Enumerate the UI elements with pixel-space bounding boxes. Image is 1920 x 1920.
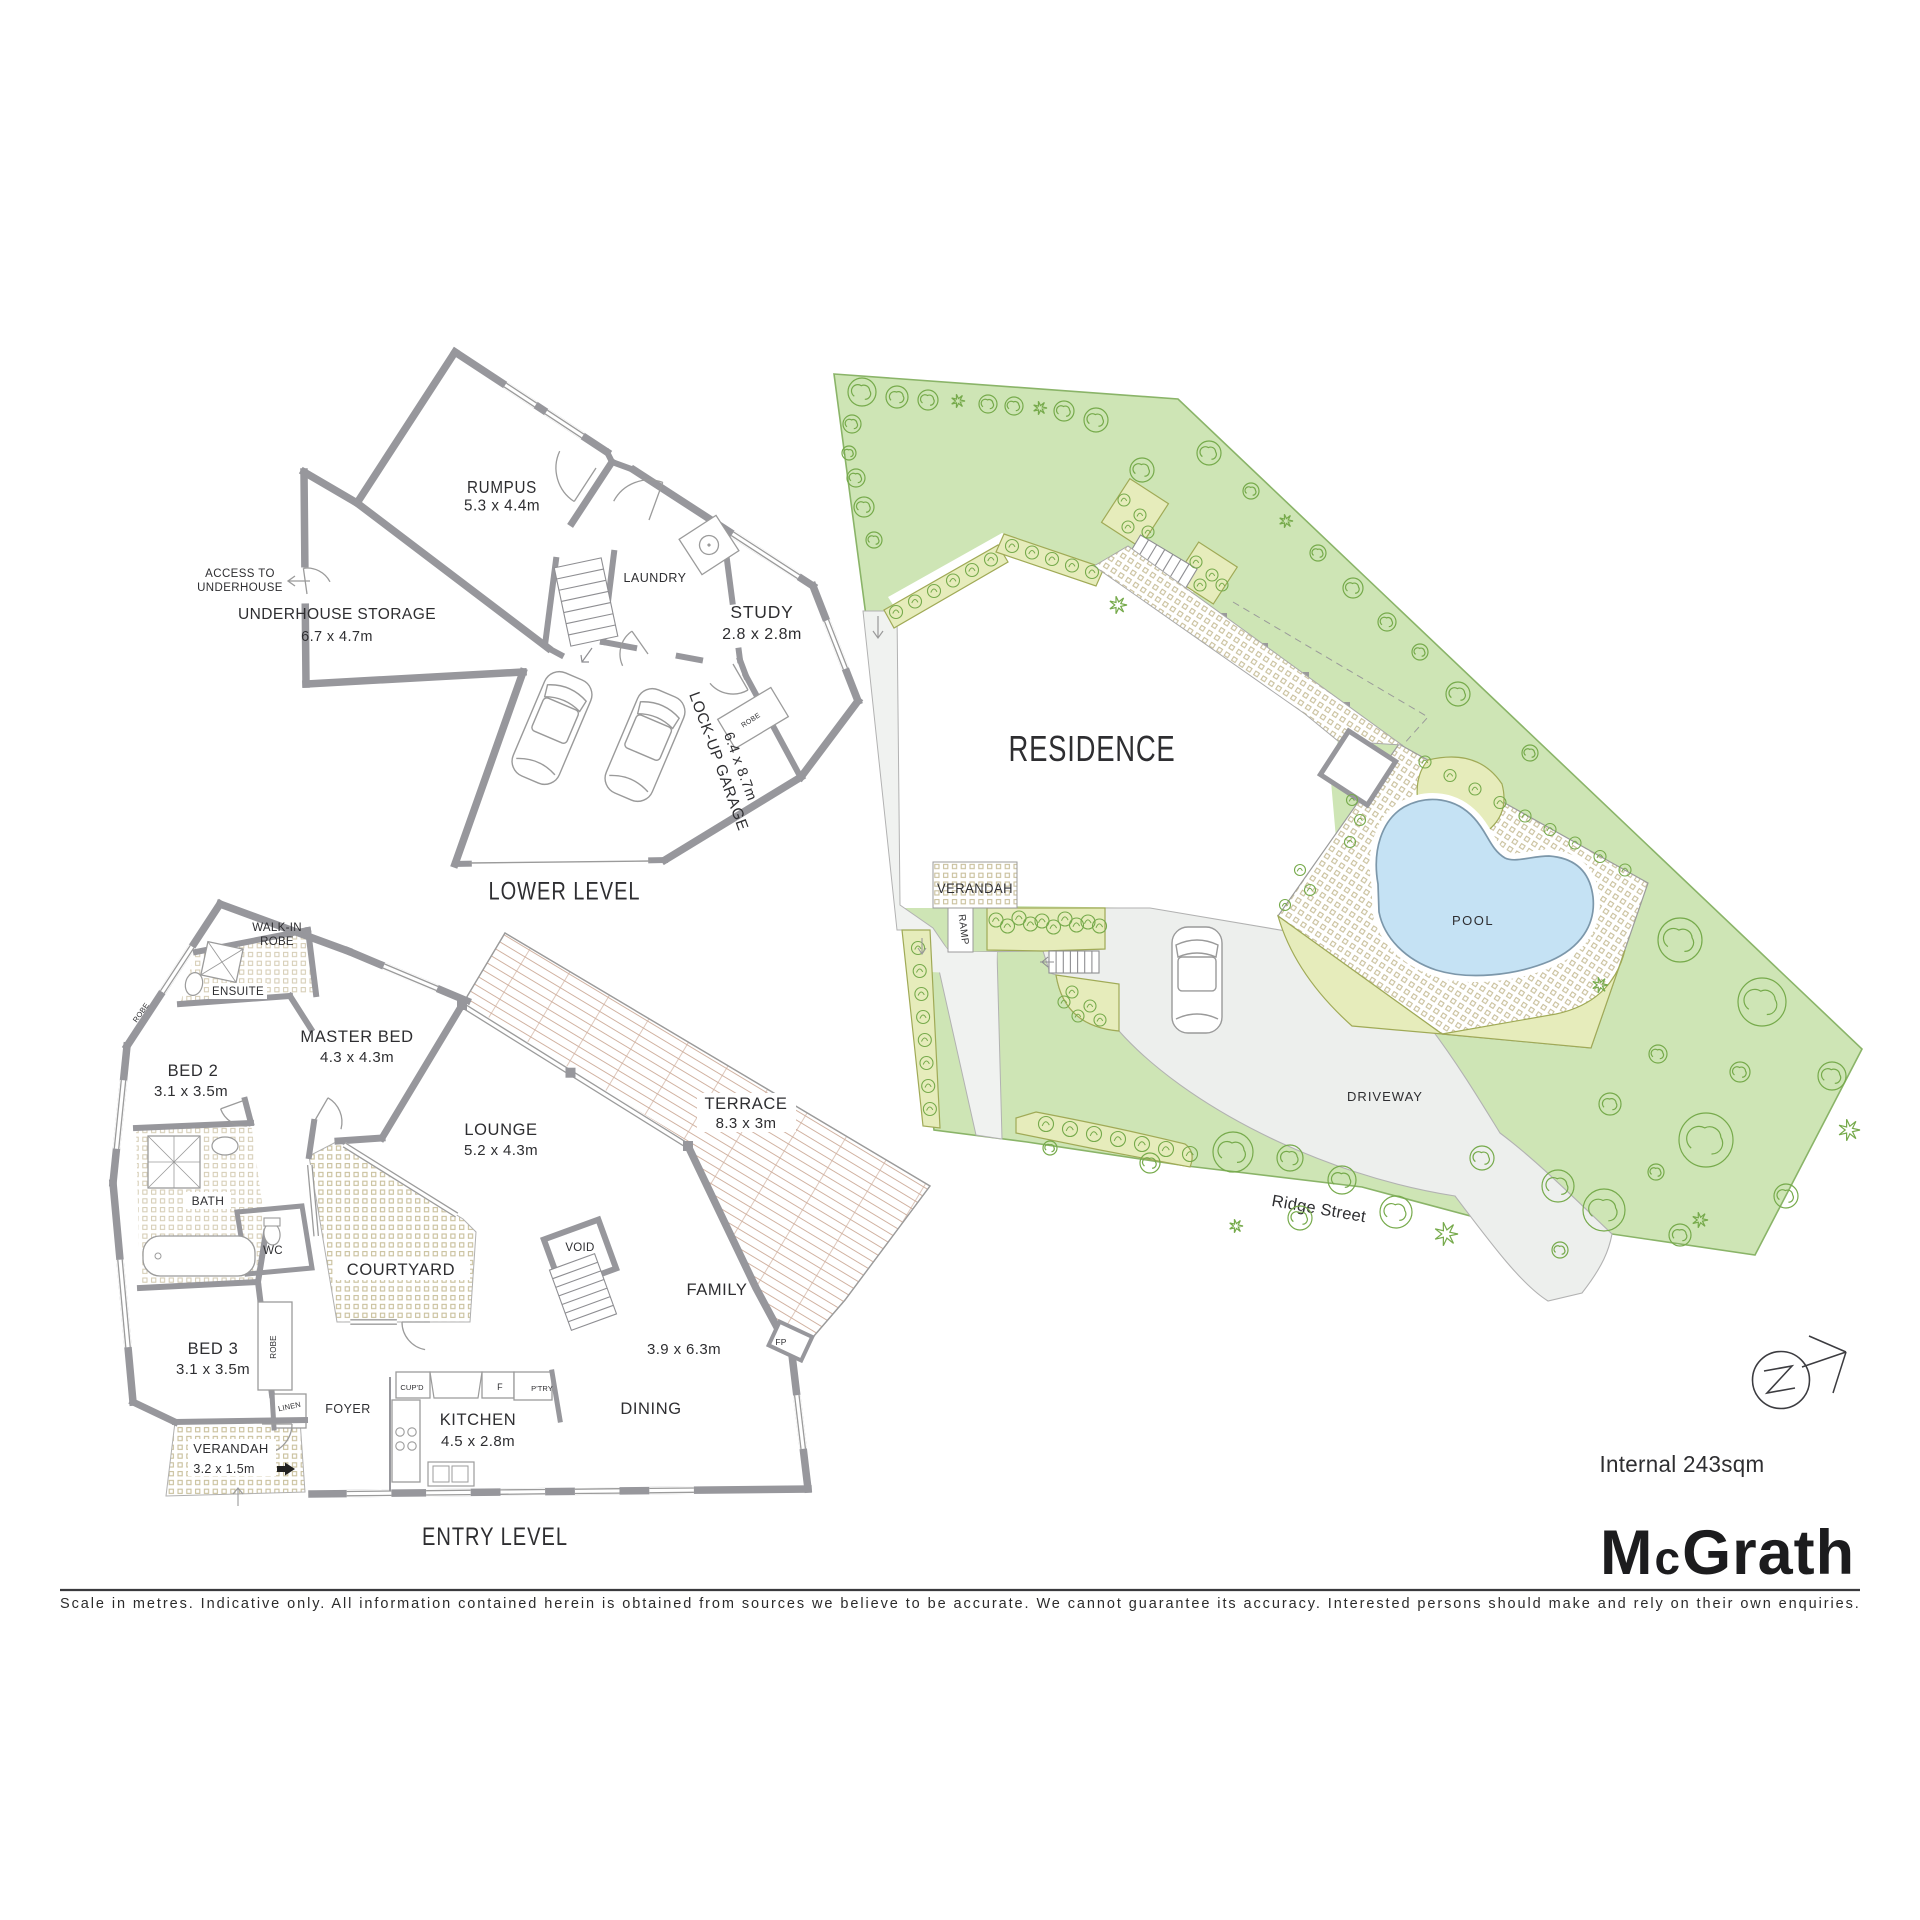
svg-text:UNDERHOUSE: UNDERHOUSE bbox=[197, 582, 283, 594]
svg-text:ROBE: ROBE bbox=[260, 936, 294, 948]
svg-text:DRIVEWAY: DRIVEWAY bbox=[1347, 1089, 1423, 1104]
svg-text:VERANDAH: VERANDAH bbox=[937, 881, 1013, 896]
svg-text:3.1 x 3.5m: 3.1 x 3.5m bbox=[176, 1361, 250, 1378]
svg-text:BED 3: BED 3 bbox=[188, 1340, 239, 1358]
svg-text:3.9 x 6.3m: 3.9 x 6.3m bbox=[647, 1341, 721, 1358]
svg-text:6.7 x 4.7m: 6.7 x 4.7m bbox=[301, 629, 373, 645]
svg-text:BATH: BATH bbox=[192, 1194, 225, 1208]
svg-text:VOID: VOID bbox=[565, 1242, 594, 1254]
svg-text:KITCHEN: KITCHEN bbox=[440, 1411, 517, 1429]
svg-text:BED 2: BED 2 bbox=[168, 1062, 219, 1080]
svg-text:STUDY: STUDY bbox=[730, 602, 793, 622]
svg-text:5.2 x 4.3m: 5.2 x 4.3m bbox=[464, 1142, 538, 1159]
svg-text:ENSUITE: ENSUITE bbox=[212, 986, 264, 998]
svg-text:8.3 x 3m: 8.3 x 3m bbox=[716, 1115, 777, 1132]
svg-text:CUP'D: CUP'D bbox=[400, 1383, 424, 1392]
svg-text:WALK-IN: WALK-IN bbox=[252, 922, 302, 934]
svg-text:F: F bbox=[497, 1382, 503, 1392]
svg-text:FP: FP bbox=[775, 1337, 786, 1347]
svg-text:3.2 x 1.5m: 3.2 x 1.5m bbox=[193, 1462, 254, 1476]
svg-text:TERRACE: TERRACE bbox=[704, 1095, 787, 1113]
svg-text:ACCESS TO: ACCESS TO bbox=[205, 568, 275, 580]
svg-text:LOWER LEVEL: LOWER LEVEL bbox=[489, 878, 641, 906]
svg-text:FOYER: FOYER bbox=[325, 1402, 371, 1416]
svg-text:ENTRY LEVEL: ENTRY LEVEL bbox=[422, 1523, 568, 1551]
svg-text:LAUNDRY: LAUNDRY bbox=[623, 571, 686, 585]
svg-text:2.8 x 2.8m: 2.8 x 2.8m bbox=[722, 626, 802, 643]
svg-text:RESIDENCE: RESIDENCE bbox=[1009, 728, 1176, 769]
svg-text:4.3 x 4.3m: 4.3 x 4.3m bbox=[320, 1049, 394, 1066]
svg-text:5.3 x 4.4m: 5.3 x 4.4m bbox=[464, 498, 540, 515]
svg-text:P'TRY: P'TRY bbox=[531, 1384, 553, 1393]
svg-text:3.1 x 3.5m: 3.1 x 3.5m bbox=[154, 1083, 228, 1100]
svg-text:McGrath: McGrath bbox=[1600, 1518, 1855, 1588]
svg-text:Internal 243sqm: Internal 243sqm bbox=[1600, 1451, 1765, 1477]
svg-text:VERANDAH: VERANDAH bbox=[193, 1441, 268, 1456]
svg-text:Scale in metres. Indicative on: Scale in metres. Indicative only. All in… bbox=[60, 1596, 1860, 1612]
svg-text:4.5 x 2.8m: 4.5 x 2.8m bbox=[441, 1433, 515, 1450]
svg-text:POOL: POOL bbox=[1452, 913, 1494, 928]
svg-text:RUMPUS: RUMPUS bbox=[467, 477, 537, 497]
svg-text:DINING: DINING bbox=[620, 1400, 681, 1418]
svg-text:WC: WC bbox=[263, 1245, 283, 1257]
svg-text:UNDERHOUSE STORAGE: UNDERHOUSE STORAGE bbox=[238, 606, 436, 623]
svg-text:ROBE: ROBE bbox=[269, 1335, 278, 1358]
svg-text:COURTYARD: COURTYARD bbox=[347, 1261, 455, 1279]
svg-text:FAMILY: FAMILY bbox=[686, 1281, 747, 1299]
svg-text:MASTER BED: MASTER BED bbox=[300, 1028, 413, 1046]
svg-text:LOUNGE: LOUNGE bbox=[464, 1121, 537, 1139]
